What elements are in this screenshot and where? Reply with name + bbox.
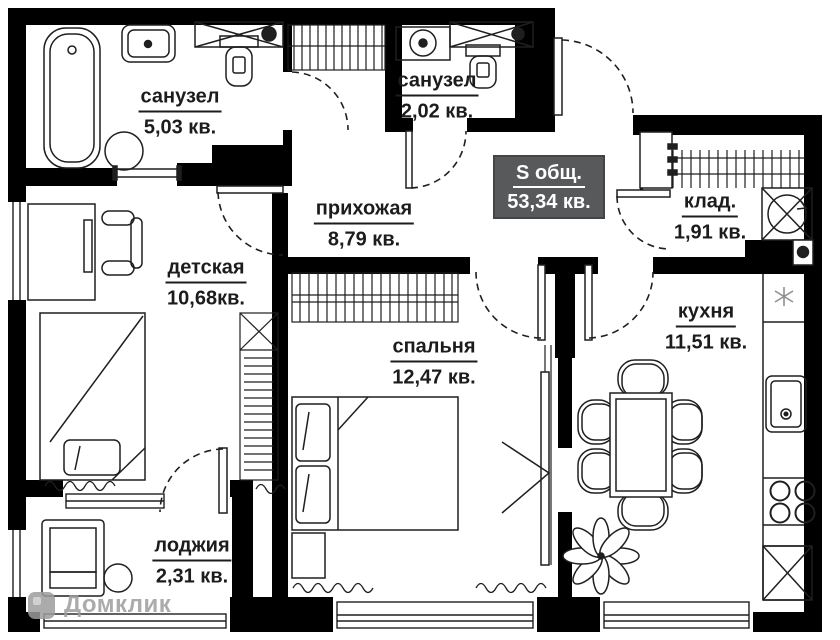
room-name-bedroom: спальня: [390, 334, 477, 363]
armchair: [42, 520, 104, 596]
plant: [563, 518, 639, 594]
window-kids-left: [8, 202, 26, 300]
electrical-panel: [640, 132, 677, 188]
hallway-wardrobe: [288, 25, 385, 70]
washer-counter-bathroom1: [195, 22, 283, 47]
bathtub: [44, 28, 100, 168]
sliding-door: [502, 345, 551, 565]
room-name-bathroom1: санузел: [139, 84, 222, 113]
laundry-basket: [105, 132, 143, 170]
vent-asterisk-icon: [775, 287, 793, 306]
domclick-logo-icon: [28, 592, 55, 619]
room-area-kids-room: 10,68кв.: [165, 286, 246, 312]
watermark: Домклик: [28, 591, 171, 619]
storage-door-leaf: [617, 190, 670, 197]
window-kitchen-bottom: [600, 602, 753, 632]
sink-bathroom1: [122, 25, 175, 62]
kids-door-leaf: [217, 186, 283, 193]
room-label-hallway: прихожая 8,79 кв.: [314, 196, 414, 253]
watermark-text: Домклик: [64, 591, 171, 619]
storage-door-arc: [617, 196, 670, 249]
room-area-bathroom1: 5,03 кв.: [139, 115, 222, 141]
entrance-door-leaf: [554, 38, 562, 115]
duct-box: [793, 240, 813, 265]
room-label-storage: клад. 1,91 кв.: [674, 189, 746, 246]
room-name-kids-room: детская: [165, 255, 246, 284]
room-label-bathroom2: санузел 2,02 кв.: [396, 68, 479, 125]
washing-machine: [396, 27, 450, 60]
loggia-door-arc: [160, 449, 223, 512]
window-bedroom-bottom: [333, 602, 537, 632]
total-area-label: S общ.: [513, 161, 585, 188]
side-table: [104, 564, 132, 592]
loggia-door-leaf: [219, 448, 227, 513]
bathroom1-door-arc: [292, 72, 348, 130]
room-label-loggia: лоджия 2,31 кв.: [152, 533, 231, 590]
room-area-hallway: 8,79 кв.: [314, 227, 414, 253]
room-area-storage: 1,91 кв.: [674, 220, 746, 246]
window-kids-loggia: [63, 480, 167, 508]
room-area-bedroom: 12,47 кв.: [390, 365, 477, 391]
counter-bathroom2: [450, 22, 533, 47]
door-threshold-bathroom1: [113, 166, 181, 180]
toilet-bathroom1: [220, 36, 258, 86]
bedroom-wardrobe: [292, 273, 458, 322]
bathroom2-door-arc: [411, 131, 466, 188]
kitchen-door-leaf: [585, 265, 592, 340]
room-area-loggia: 2,31 кв.: [152, 564, 231, 590]
total-area-value: 53,34 кв.: [507, 190, 590, 214]
room-area-bathroom2: 2,02 кв.: [396, 99, 479, 125]
room-label-kitchen: кухня 11,51 кв.: [665, 299, 747, 356]
room-label-bedroom: спальня 12,47 кв.: [390, 334, 477, 391]
room-label-bathroom1: санузел 5,03 кв.: [139, 84, 222, 141]
room-area-kitchen: 11,51 кв.: [665, 330, 747, 356]
floorplan-page: санузел 5,03 кв. санузел 2,02 кв. прихож…: [0, 0, 840, 640]
desk: [28, 204, 95, 300]
single-bed: [40, 313, 145, 480]
desk-chair: [102, 211, 142, 275]
entrance-door-arc: [562, 40, 633, 113]
room-name-kitchen: кухня: [676, 299, 736, 328]
double-bed: [292, 397, 458, 530]
dining-table: [610, 393, 672, 497]
window-loggia-left: [8, 530, 26, 597]
kitchen-door-arc: [589, 272, 653, 338]
room-name-hallway: прихожая: [314, 196, 414, 225]
bedroom-door-leaf: [538, 265, 545, 340]
room-name-storage: клад.: [682, 189, 738, 218]
bedroom-door-arc: [476, 272, 541, 338]
room-name-bathroom2: санузел: [396, 68, 479, 97]
nightstand: [292, 533, 325, 578]
total-area-badge: S общ. 53,34 кв.: [493, 155, 605, 219]
kitchen-sink: [766, 376, 806, 432]
bathroom2-door-leaf: [406, 131, 412, 188]
room-label-kids-room: детская 10,68кв.: [165, 255, 246, 312]
room-name-loggia: лоджия: [152, 533, 231, 562]
kitchen-counter: [763, 274, 804, 600]
